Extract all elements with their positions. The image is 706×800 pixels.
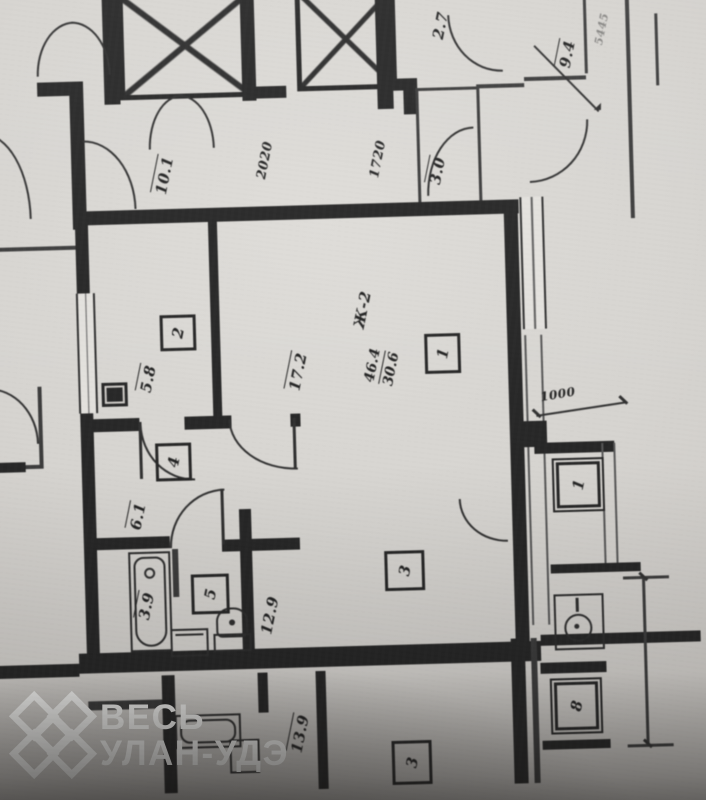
floorplan-photo: 10.1 2020 1720 3.0 2.7 9.4 5445 [0,0,706,800]
photo-shadow-overlay [0,0,706,800]
